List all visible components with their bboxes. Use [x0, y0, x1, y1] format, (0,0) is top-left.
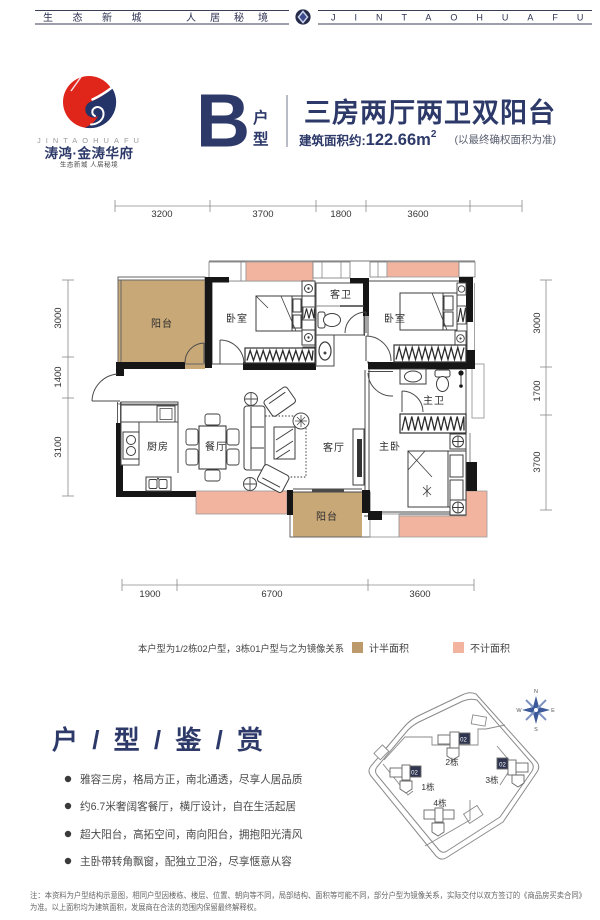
- svg-text:厨房: 厨房: [147, 440, 169, 453]
- svg-text:02: 02: [460, 738, 467, 744]
- svg-text:本户型为1/2栋02户型，3栋01户型与之为镜像关系: 本户型为1/2栋02户型，3栋01户型与之为镜像关系: [138, 643, 344, 654]
- svg-text:1栋: 1栋: [421, 782, 435, 792]
- svg-text:生态新城 人居秘境: 生态新城 人居秘境: [60, 160, 118, 169]
- svg-text:1700: 1700: [532, 380, 543, 401]
- svg-text:餐厅: 餐厅: [205, 440, 227, 453]
- svg-text:卧室: 卧室: [384, 312, 406, 325]
- svg-text:1800: 1800: [330, 209, 351, 220]
- svg-text:3200: 3200: [151, 209, 172, 220]
- svg-text:3000: 3000: [53, 307, 64, 328]
- svg-text:雅容三房，格局方正，南北通透，尽享人居品质: 雅容三房，格局方正，南北通透，尽享人居品质: [80, 773, 303, 786]
- svg-text:3100: 3100: [53, 436, 64, 457]
- svg-text:6700: 6700: [261, 589, 282, 600]
- svg-text:JINTAOHUAFU: JINTAOHUAFU: [37, 136, 144, 145]
- svg-text:注：本资料为户型结构示意图，相同户型因楼栋、楼层、位置、朝向: 注：本资料为户型结构示意图，相同户型因楼栋、楼层、位置、朝向等不同，局部结构、面…: [30, 890, 586, 900]
- svg-text:4栋: 4栋: [433, 798, 447, 808]
- svg-text:不计面积: 不计面积: [470, 642, 510, 655]
- svg-text:3600: 3600: [407, 209, 428, 220]
- svg-text:1400: 1400: [53, 366, 64, 387]
- svg-text:3700: 3700: [532, 451, 543, 472]
- svg-text:涛鸿·金涛华府: 涛鸿·金涛华府: [45, 145, 134, 161]
- svg-text:卧室: 卧室: [226, 312, 248, 325]
- svg-text:3栋: 3栋: [485, 775, 499, 785]
- svg-text:户: 户: [253, 108, 269, 127]
- svg-text:约6.7米奢阔客餐厅，横厅设计，自在生活起居: 约6.7米奢阔客餐厅，横厅设计，自在生活起居: [80, 800, 296, 813]
- svg-text:3600: 3600: [409, 589, 430, 600]
- svg-text:3000: 3000: [532, 312, 543, 333]
- svg-text:E: E: [551, 708, 555, 714]
- svg-text:主卧: 主卧: [379, 440, 401, 453]
- svg-text:客卫: 客卫: [330, 288, 352, 301]
- svg-text:2栋: 2栋: [445, 757, 459, 767]
- svg-text:主卫: 主卫: [423, 395, 445, 407]
- svg-text:超大阳台，高拓空间，南向阳台，拥抱阳光清风: 超大阳台，高拓空间，南向阳台，拥抱阳光清风: [80, 828, 303, 841]
- svg-text:1900: 1900: [139, 589, 160, 600]
- svg-text:B: B: [196, 79, 250, 163]
- svg-text:阳台: 阳台: [151, 317, 173, 330]
- svg-text:生态新城: 生态新城: [43, 11, 161, 24]
- svg-text:JINTAOHUAFU: JINTAOHUAFU: [331, 13, 600, 23]
- svg-text:阳台: 阳台: [316, 510, 338, 523]
- svg-text:计半面积: 计半面积: [369, 642, 409, 655]
- svg-text:N: N: [534, 689, 538, 695]
- svg-text:02: 02: [411, 771, 418, 777]
- svg-text:W: W: [516, 708, 522, 714]
- svg-text:型: 型: [253, 131, 269, 149]
- svg-text:为准。以上面积均为建筑面积，发展商在合法的范围内保留最终解释: 为准。以上面积均为建筑面积，发展商在合法的范围内保留最终解释权。: [30, 902, 261, 912]
- svg-text:(以最终确权面积为准): (以最终确权面积为准): [455, 133, 557, 146]
- svg-text:客厅: 客厅: [323, 441, 345, 454]
- svg-text:3700: 3700: [252, 209, 273, 220]
- svg-text:人居秘境: 人居秘境: [186, 11, 282, 24]
- svg-text:S: S: [534, 727, 538, 733]
- svg-text:主卧带转角飘窗，配独立卫浴，尽享惬意从容: 主卧带转角飘窗，配独立卫浴，尽享惬意从容: [80, 855, 292, 868]
- svg-text:三房两厅两卫双阳台: 三房两厅两卫双阳台: [304, 97, 556, 128]
- svg-text:02: 02: [499, 763, 506, 769]
- svg-text:户 / 型 / 鉴 / 赏: 户 / 型 / 鉴 / 赏: [52, 725, 267, 755]
